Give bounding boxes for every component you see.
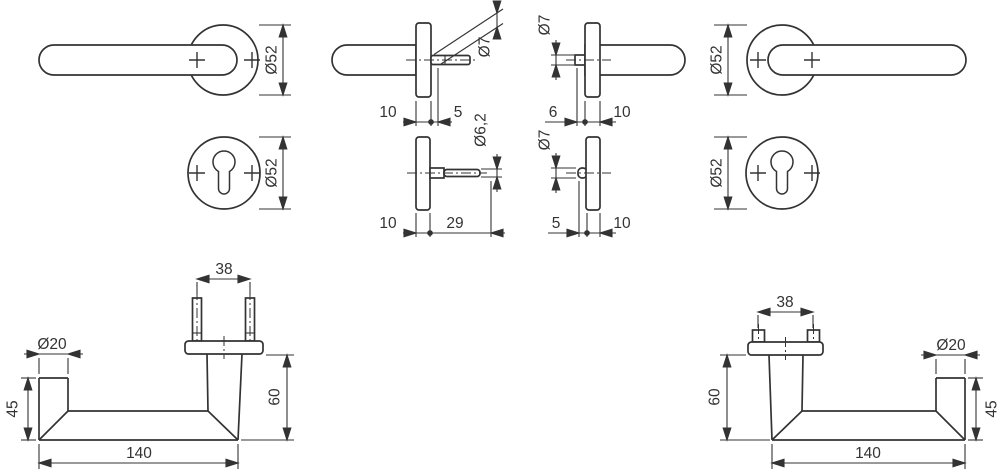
dim-pin-diameter: Ø6,2	[472, 113, 489, 147]
grip-diameter-dimension	[921, 351, 980, 374]
end-height-dimension	[21, 378, 36, 440]
handle-front-left: Ø52	[39, 25, 291, 95]
dim-length: 140	[855, 445, 881, 462]
dim-pin-length: 29	[446, 215, 463, 232]
dim-rose-depth: 10	[379, 215, 397, 232]
dim-escutcheon-diameter: Ø52	[263, 158, 280, 187]
handle-top-right: 38 Ø20 45 60	[706, 294, 1000, 469]
dim-pin-length: 6	[549, 104, 558, 121]
handle-front-right: Ø52	[708, 25, 966, 95]
door-handle-technical-drawing: Ø52 Ø52 Ø7	[0, 0, 1000, 472]
stud-spacing-dimension	[197, 275, 250, 295]
neck-height-dimension	[720, 355, 770, 440]
dim-rose-depth: 10	[613, 104, 631, 121]
handle-side-right: Ø7 6 10	[536, 15, 685, 126]
end-height-dimension	[968, 378, 983, 440]
lever-grip	[768, 45, 966, 75]
dim-end-height: 45	[983, 400, 1000, 417]
dim-pin-diameter: Ø7	[536, 15, 553, 36]
dim-spindle-length: 5	[454, 104, 463, 121]
escutcheon-side-left: Ø6,2 10 29	[379, 113, 505, 237]
dim-stud-spacing: 38	[215, 261, 232, 278]
dim-end-height: 45	[4, 400, 21, 417]
handle-side-left: Ø7 10 5	[332, 1, 503, 126]
dim-pin-diameter: Ø7	[536, 130, 553, 151]
technical-drawing-page: Ø52 Ø52 Ø7	[0, 0, 1000, 472]
handle-top-left: 38 Ø20 45 60	[4, 261, 294, 469]
dim-escutcheon-diameter: Ø52	[708, 158, 725, 187]
escutcheon-front-right: Ø52	[708, 137, 820, 209]
dim-grip-diameter: Ø20	[37, 336, 67, 353]
dim-rose-depth: 10	[379, 104, 397, 121]
dim-rose-diameter: Ø52	[708, 45, 725, 74]
escutcheon-front-left: Ø52	[188, 137, 291, 209]
dim-neck-height: 60	[266, 388, 283, 406]
grip-diameter-dimension	[24, 350, 83, 374]
stud-spacing-dimension	[758, 308, 813, 328]
lever-grip	[39, 45, 237, 75]
dim-grip-diameter: Ø20	[936, 337, 966, 354]
dim-neck-height: 60	[706, 388, 723, 406]
lever-side	[332, 45, 416, 75]
dim-length: 140	[126, 445, 152, 462]
handle-body	[39, 354, 242, 440]
escutcheon-side-right: Ø7 5 10	[536, 130, 631, 237]
dim-pin-length: 5	[552, 215, 561, 232]
dim-rose-depth: 10	[613, 215, 631, 232]
dim-stud-spacing: 38	[776, 294, 793, 311]
dim-spindle-diameter: Ø7	[476, 37, 493, 58]
dim-rose-diameter: Ø52	[263, 45, 280, 74]
